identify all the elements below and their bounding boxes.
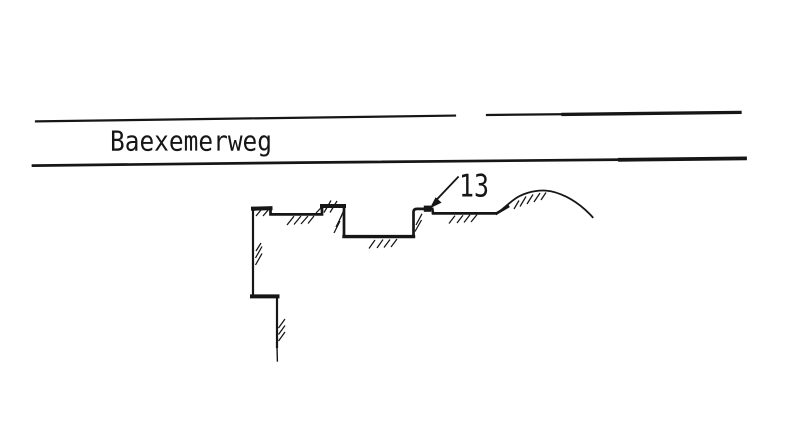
sketch-canvas: Baexemerweg xyxy=(0,0,800,427)
leader-line xyxy=(437,177,459,200)
boundary-point-marker xyxy=(424,206,431,212)
hatch-recess-right-wall xyxy=(415,214,422,232)
road: Baexemerweg xyxy=(33,112,745,165)
hatch-hill xyxy=(514,193,546,210)
parcel-annotation: 13 xyxy=(424,169,489,212)
situation-sketch: Baexemerweg xyxy=(0,0,800,427)
hatch-lower-wall xyxy=(279,319,286,341)
hatch-left-wall xyxy=(256,243,263,265)
parcel-outline xyxy=(253,206,508,237)
parcel-number-label: 13 xyxy=(459,169,489,205)
road-upper-edge xyxy=(36,116,455,122)
hatch-recess-left-wall xyxy=(334,210,344,233)
hatch-recess-floor xyxy=(369,239,397,249)
hatch-right-edge xyxy=(449,215,477,224)
road-name-label: Baexemerweg xyxy=(110,125,272,158)
arrowhead-icon xyxy=(430,197,442,208)
road-upper-edge-thick xyxy=(563,112,740,114)
road-lower-edge-thick xyxy=(620,158,745,159)
hatch-upper-edge-left xyxy=(287,216,314,225)
parcel-outline-group xyxy=(252,206,508,361)
